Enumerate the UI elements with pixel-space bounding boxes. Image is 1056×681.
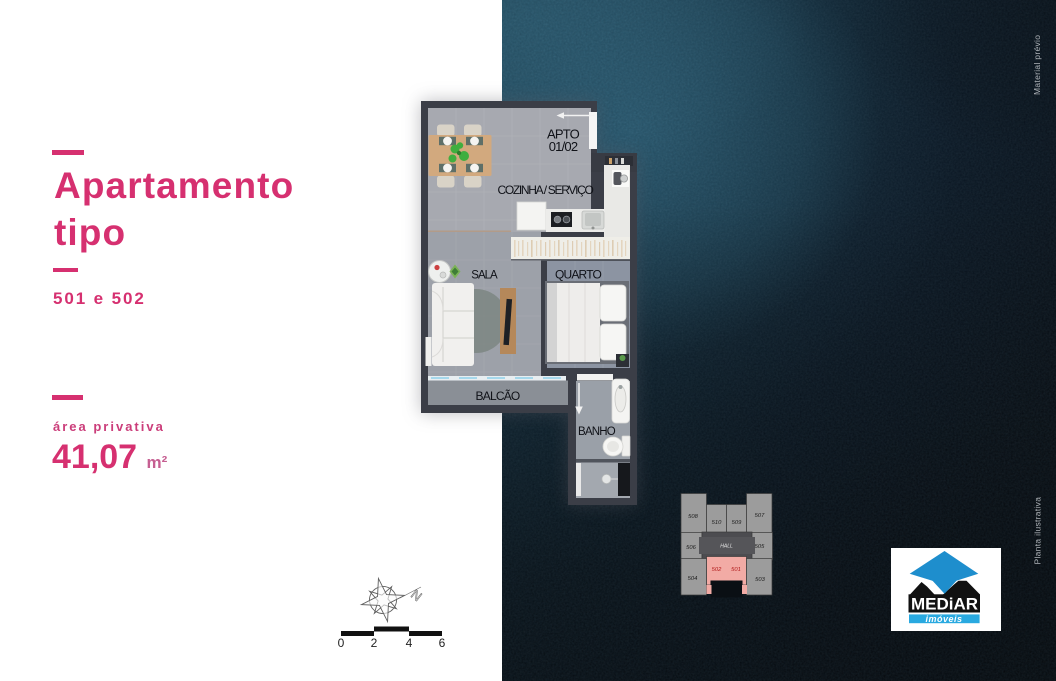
- svg-text:4: 4: [406, 636, 413, 650]
- svg-text:503: 503: [755, 577, 765, 583]
- svg-text:508: 508: [688, 514, 698, 520]
- svg-text:QUARTO: QUARTO: [555, 268, 602, 282]
- svg-text:HALL: HALL: [720, 544, 733, 550]
- svg-text:N: N: [408, 587, 425, 605]
- svg-text:6: 6: [439, 636, 446, 650]
- svg-text:SALA: SALA: [471, 270, 498, 282]
- svg-text:2: 2: [371, 636, 378, 650]
- svg-text:0: 0: [338, 636, 345, 650]
- svg-text:01/02: 01/02: [549, 139, 578, 154]
- svg-text:509: 509: [732, 520, 742, 526]
- svg-text:504: 504: [688, 576, 698, 582]
- svg-text:MEDiAR: MEDiAR: [911, 594, 978, 613]
- svg-text:imóveis: imóveis: [925, 614, 962, 624]
- svg-text:510: 510: [712, 520, 722, 526]
- svg-text:502: 502: [712, 567, 722, 573]
- svg-text:501: 501: [731, 567, 741, 573]
- svg-text:COZINHA / SERVIÇO: COZINHA / SERVIÇO: [497, 183, 593, 197]
- svg-text:505: 505: [755, 544, 765, 550]
- svg-text:BANHO: BANHO: [578, 426, 616, 438]
- svg-text:BALCÃO: BALCÃO: [476, 389, 520, 403]
- svg-text:507: 507: [755, 513, 765, 519]
- svg-text:506: 506: [686, 545, 696, 551]
